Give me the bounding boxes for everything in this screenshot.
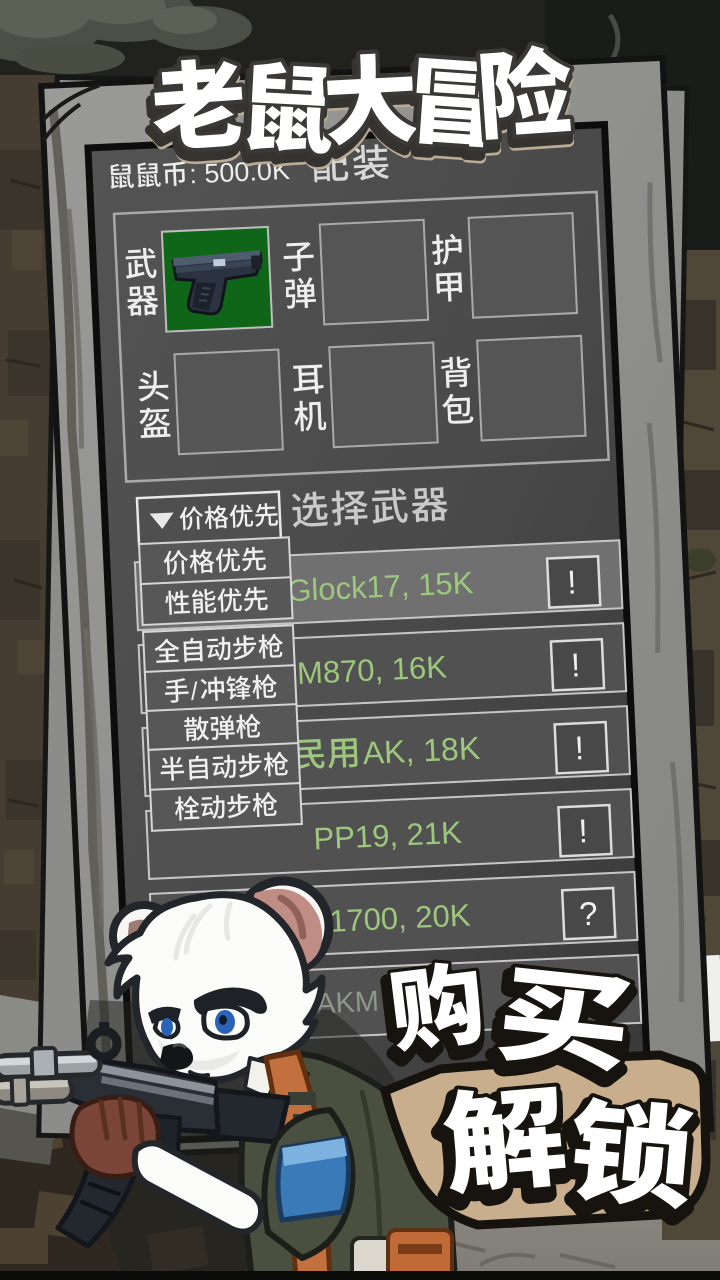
- svg-text:!: !: [574, 729, 585, 766]
- svg-text:M870, 16K: M870, 16K: [296, 649, 448, 691]
- svg-text:!: !: [570, 646, 581, 683]
- svg-text:/: /: [190, 678, 198, 706]
- svg-text:!: !: [566, 563, 577, 600]
- svg-text:AK, 18K: AK, 18K: [362, 730, 481, 771]
- svg-text:PP19, 21K: PP19, 21K: [313, 815, 463, 857]
- svg-text:!: !: [578, 812, 589, 849]
- svg-text:?: ?: [578, 895, 598, 933]
